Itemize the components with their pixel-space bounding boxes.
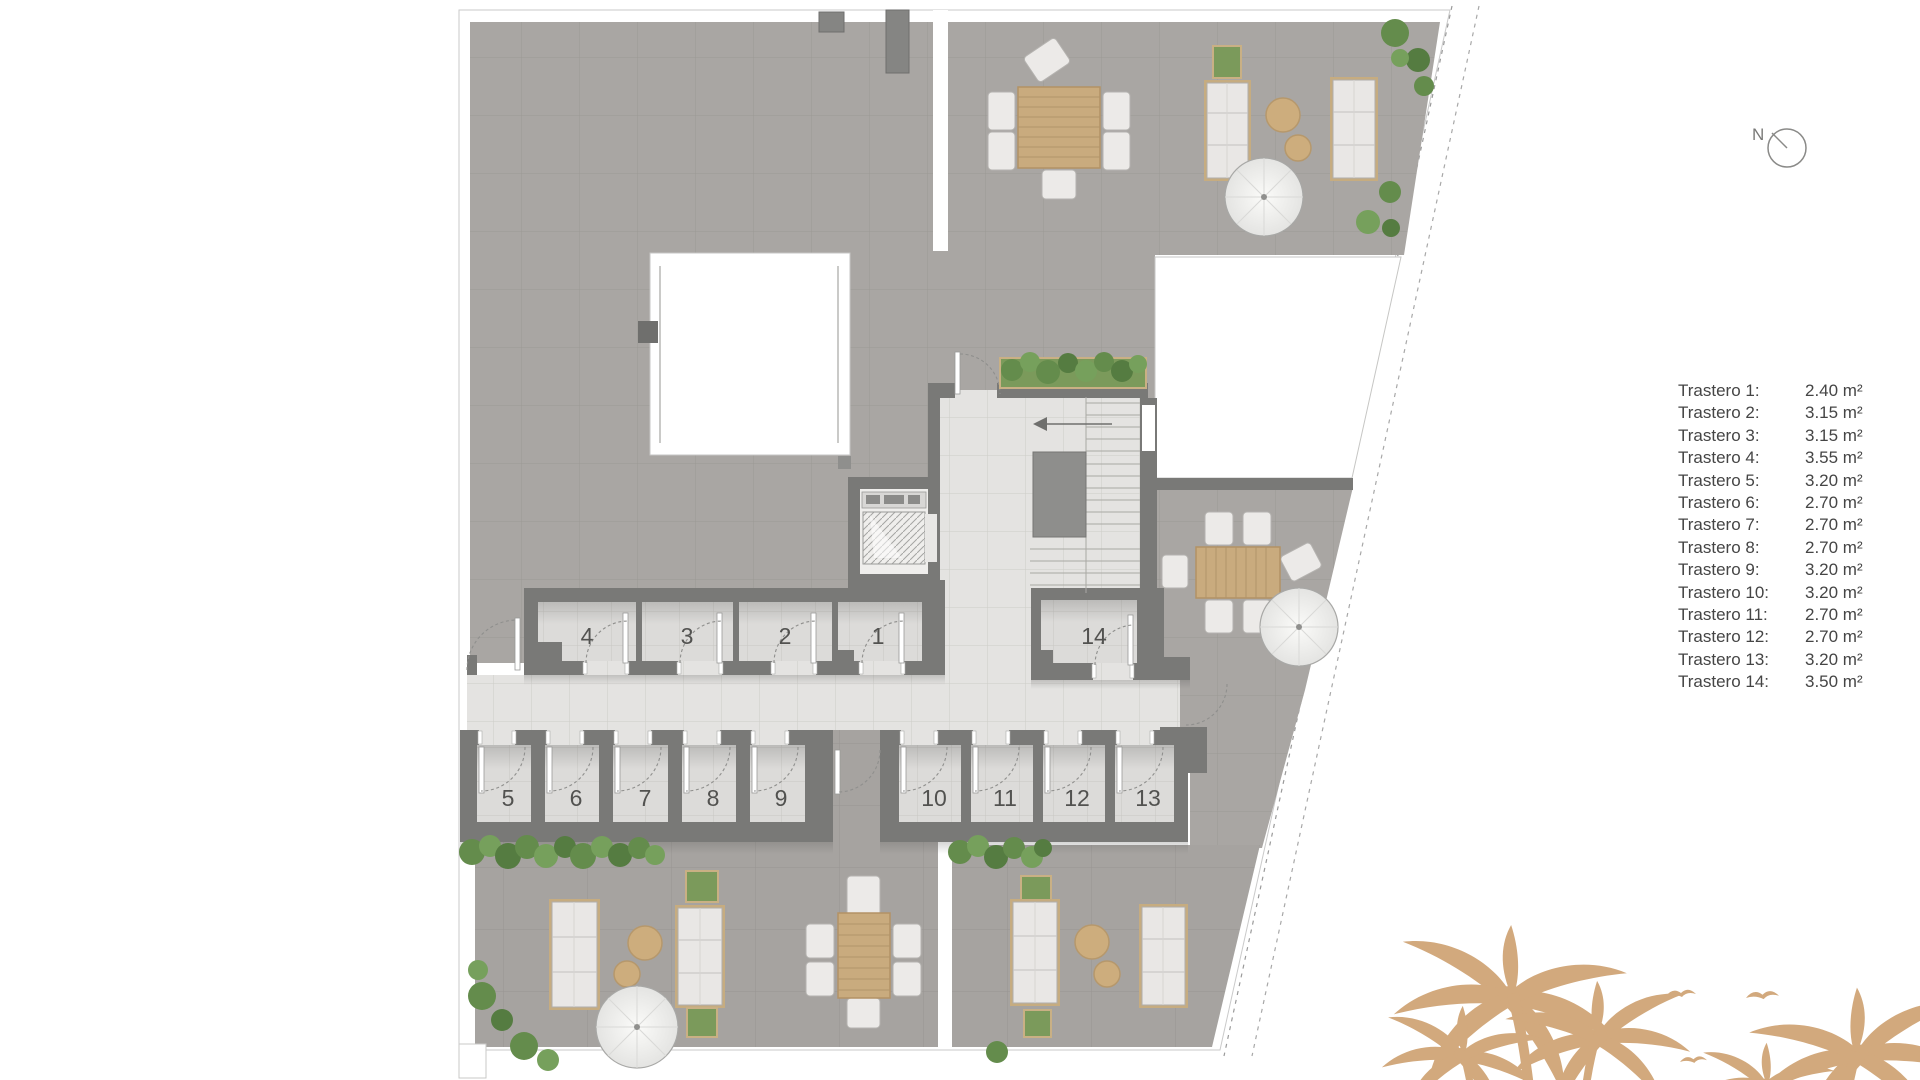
legend-label: Trastero 11:	[1678, 604, 1805, 626]
legend-row: Trastero 5:3.20 m²	[1678, 470, 1863, 492]
legend-row: Trastero 1:2.40 m²	[1678, 380, 1863, 402]
corner-planter-box	[459, 1044, 486, 1078]
legend-value: 3.15 m²	[1805, 402, 1863, 424]
dining-table	[1196, 547, 1280, 598]
room-label-9: 9	[775, 785, 788, 811]
area-legend: Trastero 1:2.40 m² Trastero 2:3.15 m² Tr…	[1678, 380, 1863, 694]
sun-lounger	[549, 899, 600, 1010]
dining-table	[838, 913, 890, 998]
chair	[847, 998, 880, 1028]
legend-value: 3.50 m²	[1805, 671, 1863, 693]
legend-row: Trastero 6:2.70 m²	[1678, 492, 1863, 514]
room-label-3: 3	[681, 623, 694, 649]
legend-label: Trastero 6:	[1678, 492, 1805, 514]
room-label-10: 10	[921, 785, 947, 811]
side-table	[614, 961, 640, 987]
palm-tree-icon	[1749, 987, 1920, 1080]
corridor-west-wall	[928, 398, 940, 478]
divider-strip-top	[933, 10, 948, 251]
stair-landing	[1033, 452, 1086, 537]
chair	[893, 962, 921, 996]
chair	[1205, 600, 1233, 633]
sun-lounger	[1139, 904, 1188, 1008]
void-south-wall	[1157, 478, 1353, 490]
parasol	[596, 986, 678, 1068]
sun-lounger	[675, 905, 725, 1008]
chair	[1162, 555, 1188, 588]
void-left-handle	[638, 321, 658, 343]
side-table	[1266, 98, 1300, 132]
legend-label: Trastero 5:	[1678, 470, 1805, 492]
legend-value: 2.40 m²	[1805, 380, 1863, 402]
chair	[893, 924, 921, 958]
chair	[1103, 132, 1130, 170]
legend-label: Trastero 1:	[1678, 380, 1805, 402]
legend-value: 3.20 m²	[1805, 470, 1863, 492]
legend-label: Trastero 12:	[1678, 626, 1805, 648]
parasol	[1225, 158, 1303, 236]
legend-row: Trastero 2:3.15 m²	[1678, 402, 1863, 424]
planter	[1213, 46, 1241, 78]
side-table	[1285, 135, 1311, 161]
north-compass: N	[1742, 118, 1822, 187]
legend-value: 3.55 m²	[1805, 447, 1863, 469]
bird-icon	[1680, 1056, 1707, 1063]
floorplan-page: 4 3 2 1 14 5 6 7 8 9 10 11 12 13 Traster…	[0, 0, 1920, 1080]
vent-small	[819, 12, 844, 32]
chair	[988, 132, 1015, 170]
chair	[806, 962, 834, 996]
planter	[1021, 876, 1051, 902]
room-label-7: 7	[639, 785, 652, 811]
chair	[847, 876, 880, 918]
core-top-wall-left	[928, 383, 955, 398]
corridor-junction	[945, 593, 1031, 675]
legend-row: Trastero 8:2.70 m²	[1678, 537, 1863, 559]
legend-row: Trastero 10:3.20 m²	[1678, 582, 1863, 604]
legend-label: Trastero 2:	[1678, 402, 1805, 424]
sun-lounger	[1010, 899, 1060, 1006]
legend-label: Trastero 8:	[1678, 537, 1805, 559]
room-label-1: 1	[872, 623, 885, 649]
side-table	[1094, 961, 1120, 987]
legend-value: 3.20 m²	[1805, 559, 1863, 581]
parasol	[1260, 588, 1338, 666]
legend-label: Trastero 14:	[1678, 671, 1805, 693]
legend-row: Trastero 3:3.15 m²	[1678, 425, 1863, 447]
compass-north-label: N	[1752, 125, 1764, 144]
room-label-12: 12	[1064, 785, 1090, 811]
elevator-south-wall	[848, 580, 945, 592]
vent-tall	[886, 10, 909, 73]
legend-value: 3.20 m²	[1805, 649, 1863, 671]
legend-value: 2.70 m²	[1805, 604, 1863, 626]
elevator	[860, 489, 937, 574]
side-table	[628, 926, 662, 960]
chair	[1205, 512, 1233, 545]
side-table	[1075, 925, 1109, 959]
void-left	[638, 253, 851, 469]
room-label-8: 8	[707, 785, 720, 811]
legend-row: Trastero 13:3.20 m²	[1678, 649, 1863, 671]
chair	[1103, 92, 1130, 130]
room-label-13: 13	[1135, 785, 1161, 811]
void-right	[1155, 257, 1401, 478]
legend-row: Trastero 4:3.55 m²	[1678, 447, 1863, 469]
legend-value: 3.15 m²	[1805, 425, 1863, 447]
sun-lounger	[1330, 77, 1378, 181]
compass-needle	[1772, 133, 1787, 148]
chair	[806, 924, 834, 958]
elevator-door-opening	[925, 514, 937, 562]
legend-row: Trastero 11:2.70 m²	[1678, 604, 1863, 626]
legend-label: Trastero 4:	[1678, 447, 1805, 469]
legend-value: 3.20 m²	[1805, 582, 1863, 604]
planter	[1024, 1010, 1051, 1037]
bird-icon	[1746, 991, 1779, 999]
chair	[988, 92, 1015, 130]
room-label-14: 14	[1081, 623, 1107, 649]
legend-label: Trastero 10:	[1678, 582, 1805, 604]
legend-row: Trastero 12:2.70 m²	[1678, 626, 1863, 648]
stairwell-wall-gap	[1142, 405, 1155, 451]
legend-value: 2.70 m²	[1805, 492, 1863, 514]
east-wall-band	[1137, 657, 1190, 680]
legend-value: 2.70 m²	[1805, 626, 1863, 648]
room-label-6: 6	[570, 785, 583, 811]
planter	[687, 1008, 717, 1037]
legend-label: Trastero 3:	[1678, 425, 1805, 447]
floorplan-drawing: 4 3 2 1 14 5 6 7 8 9 10 11 12 13	[0, 0, 1920, 1080]
legend-label: Trastero 9:	[1678, 559, 1805, 581]
legend-row: Trastero 7:2.70 m²	[1678, 514, 1863, 536]
bush-bottom-center	[986, 1041, 1008, 1063]
room-label-5: 5	[502, 785, 515, 811]
room-label-2: 2	[779, 623, 792, 649]
legend-label: Trastero 7:	[1678, 514, 1805, 536]
legend-row: Trastero 14:3.50 m²	[1678, 671, 1863, 693]
legend-row: Trastero 9:3.20 m²	[1678, 559, 1863, 581]
palm-decoration	[1381, 925, 1920, 1080]
legend-value: 2.70 m²	[1805, 537, 1863, 559]
legend-value: 2.70 m²	[1805, 514, 1863, 536]
room-label-4: 4	[581, 623, 594, 649]
planter	[686, 871, 718, 902]
void-left-corner-block	[838, 456, 851, 469]
chair	[1243, 512, 1271, 545]
divider-strip-bottom	[938, 842, 952, 1047]
legend-label: Trastero 13:	[1678, 649, 1805, 671]
room-label-11: 11	[993, 785, 1017, 811]
chair	[1042, 170, 1076, 199]
compass-icon: N	[1742, 118, 1822, 182]
